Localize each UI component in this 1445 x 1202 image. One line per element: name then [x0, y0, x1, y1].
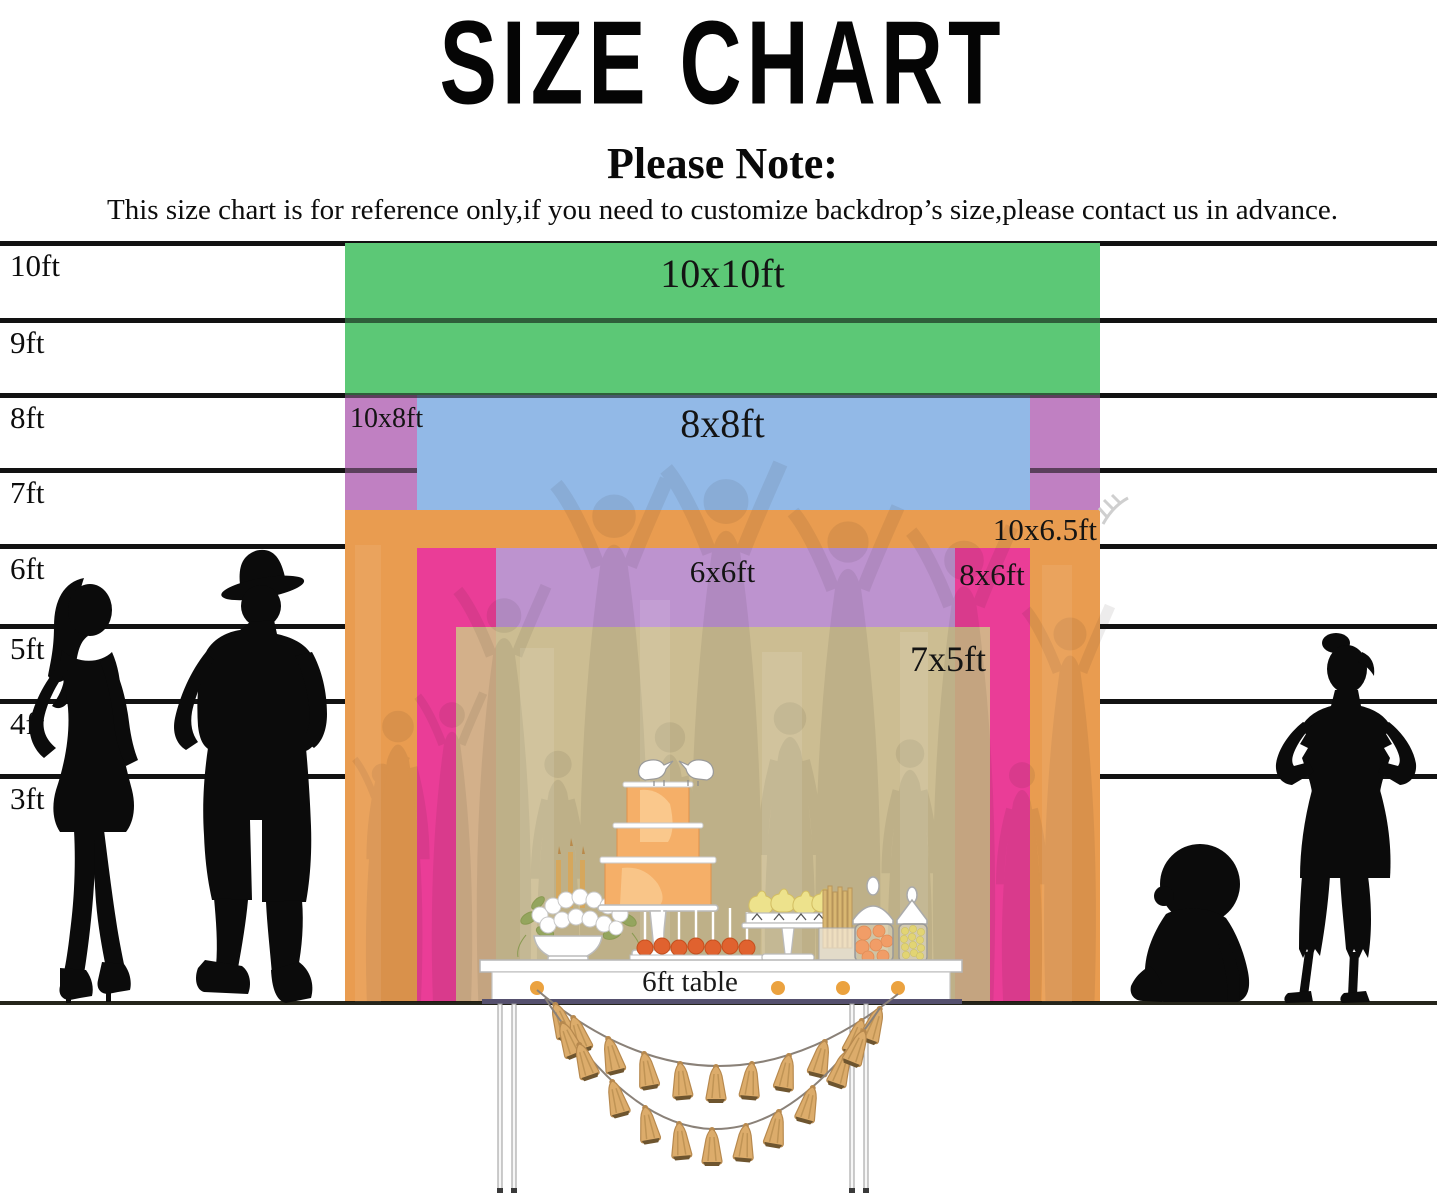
label-8x8ft: 8x8ft [0, 402, 1445, 446]
table-leg-feet [497, 1188, 869, 1193]
woman-silhouette-right [1276, 633, 1416, 1003]
ruler-label-3ft: 3ft [10, 783, 44, 814]
ruler-label-4ft: 4ft [10, 708, 44, 739]
line-through-10x8-left [345, 468, 417, 473]
note-text: This size chart is for reference only,if… [0, 194, 1445, 227]
label-8x6ft: 8x6ft [922, 558, 1062, 592]
woman-silhouette-left [30, 578, 138, 1003]
ruler-label-9ft: 9ft [10, 327, 44, 358]
sprig-watermark-icon [1099, 495, 1128, 524]
tassel-garland-upper [537, 990, 898, 1103]
page-title: SIZE CHART [0, 0, 1445, 133]
table-legs [498, 1004, 868, 1190]
label-7x5ft: 7x5ft [786, 640, 986, 680]
ruler-label-7ft: 7ft [10, 477, 44, 508]
line-through-8ft-edge [345, 393, 1100, 398]
label-10x6.5ft: 10x6.5ft [897, 513, 1097, 547]
line-through-10x10 [345, 318, 1100, 323]
line-through-10x8-right [1030, 468, 1100, 473]
size-chart-infographic: SIZE CHART Please Note: This size chart … [0, 0, 1445, 1202]
label-6x6ft: 6x6ft [0, 555, 1445, 589]
ruler-label-5ft: 5ft [10, 633, 44, 664]
note-heading: Please Note: [0, 138, 1445, 189]
tassel-garland-lower [545, 998, 880, 1166]
ground-line [0, 1001, 1437, 1005]
backdrop-7x5ft [456, 627, 990, 1002]
label-10x10ft: 10x10ft [0, 252, 1445, 296]
baby-silhouette [1131, 844, 1249, 1002]
table-size-label: 6ft table [560, 966, 820, 999]
